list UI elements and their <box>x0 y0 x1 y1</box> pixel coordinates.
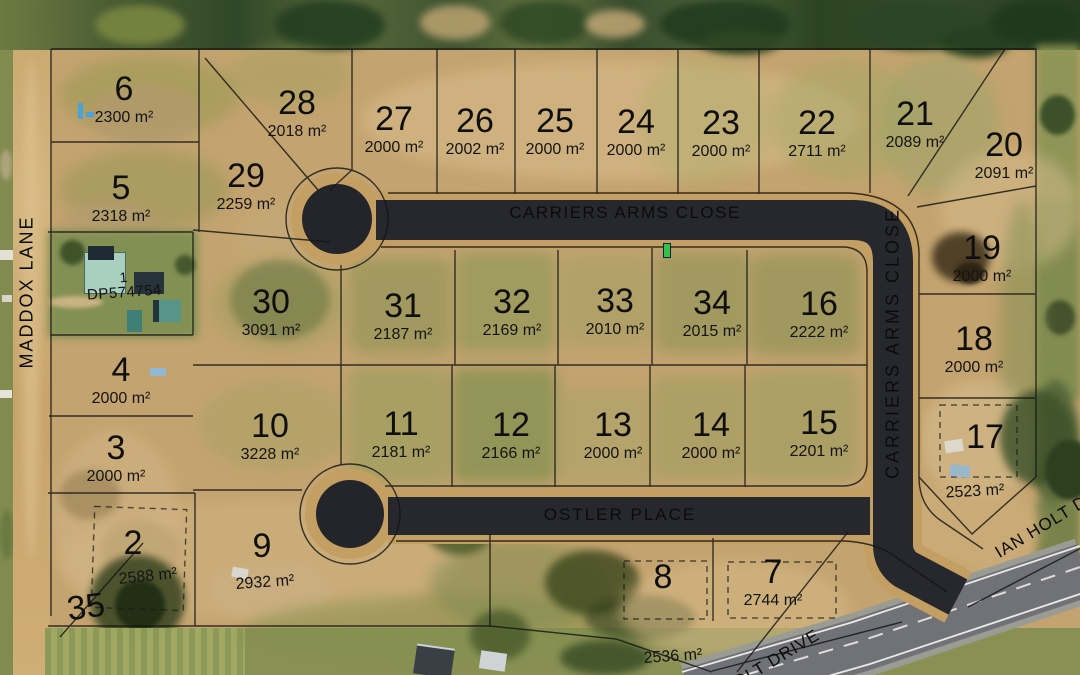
lot-label: 182000 m² <box>945 322 1004 376</box>
lot-number: 31 <box>384 289 422 323</box>
street-label-carriers-arms-close-vertical: CARRIERS ARMS CLOSE <box>883 207 904 479</box>
lot-number: 7 <box>764 555 783 589</box>
lot-area: 2089 m² <box>886 135 945 151</box>
lot-number: 26 <box>456 104 494 138</box>
lot-area: 3091 m² <box>242 323 301 339</box>
lot-area: 2000 m² <box>945 360 1004 376</box>
lot-label: 322169 m² <box>483 285 542 339</box>
lot-area: 2000 m² <box>92 391 151 407</box>
lot-area: 2711 m² <box>788 144 846 160</box>
neighbour-roof <box>0 390 12 398</box>
lot-label: 282018 m² <box>268 86 327 140</box>
lot-number: 11 <box>383 407 418 441</box>
lot-label: 9 <box>253 529 272 563</box>
lot-area: 2002 m² <box>446 142 505 158</box>
lot-label: 62300 m² <box>95 72 154 126</box>
machinery <box>949 464 970 478</box>
lot-area: 2187 m² <box>374 327 433 343</box>
street-label-carriers-arms-close: CARRIERS ARMS CLOSE <box>509 203 741 223</box>
lot-number: 25 <box>536 104 574 138</box>
lot-label: 72744 m² <box>744 555 803 609</box>
lot-label: 232000 m² <box>692 106 751 160</box>
lot-area: 2318 m² <box>92 209 151 225</box>
lot-label: 202091 m² <box>975 128 1034 182</box>
lot-area: 2000 m² <box>87 469 146 485</box>
lot-number: 8 <box>654 560 673 594</box>
lot-label: 292259 m² <box>217 159 276 213</box>
lot-area: 2744 m² <box>744 593 803 609</box>
lot-number: 4 <box>112 353 131 387</box>
aerial-subdivision-map: 62300 m²52318 m²282018 m²292259 m²272000… <box>0 0 1080 675</box>
survey-marker <box>663 243 671 258</box>
ostler-bulb <box>316 480 384 548</box>
lot-label: 222711 m² <box>788 106 846 160</box>
lot-number: 23 <box>702 106 740 140</box>
lot-number: 19 <box>963 231 1001 265</box>
lot-label: 132000 m² <box>584 408 643 462</box>
lot-label: 262002 m² <box>446 104 505 158</box>
lot-area: 2091 m² <box>975 166 1034 182</box>
lot-label: 312187 m² <box>374 289 433 343</box>
lot-number: 33 <box>596 284 634 318</box>
lot-number: 32 <box>493 285 531 319</box>
lot-label: 17 <box>966 420 1004 454</box>
lot-label: 303091 m² <box>242 285 301 339</box>
lot-label: 2 <box>124 526 143 560</box>
lot-area: 2300 m² <box>95 110 154 126</box>
neighbour-roof <box>0 250 13 260</box>
neighbour-roof <box>2 295 12 302</box>
lot-number: 29 <box>227 159 265 193</box>
lot-label: 242000 m² <box>607 105 666 159</box>
lot-area: 2000 m² <box>953 269 1012 285</box>
lot-label: 103228 m² <box>241 409 300 463</box>
lot-area: 2000 m² <box>607 143 666 159</box>
lot-label: 8 <box>654 560 673 594</box>
shed-light-roof <box>479 650 507 671</box>
lot-area: 2523 m² <box>945 481 1005 502</box>
lot-number: 13 <box>594 408 632 442</box>
lot-number: 9 <box>253 529 272 563</box>
lot-area: 2166 m² <box>482 446 541 462</box>
shed-roof <box>153 300 181 322</box>
carriers-bulb <box>302 184 372 254</box>
lot-number: 27 <box>375 102 413 136</box>
portaloo <box>86 112 94 117</box>
lot-area: 2000 m² <box>365 140 424 156</box>
lot-label: 212089 m² <box>886 97 945 151</box>
lot-number: 35 <box>65 588 107 627</box>
lot-area: 2000 m² <box>692 144 751 160</box>
lot-area: 2201 m² <box>790 444 849 460</box>
lot-label: 52318 m² <box>92 171 151 225</box>
lot-number: 24 <box>617 105 655 139</box>
lot-number: 2 <box>124 526 143 560</box>
lot-label: 152201 m² <box>790 406 849 460</box>
lot-number: 10 <box>251 409 289 443</box>
lot-number: 21 <box>896 97 934 131</box>
lot-number: 16 <box>800 287 838 321</box>
shed-dark-roof <box>413 644 455 675</box>
trailer <box>150 368 166 376</box>
lot-label: 122166 m² <box>482 408 541 462</box>
lot-area: 3228 m² <box>241 447 300 463</box>
lot-label: 162222 m² <box>790 287 849 341</box>
lot-label: 35 <box>65 588 107 627</box>
portaloo <box>78 103 83 119</box>
lot-number: 12 <box>492 408 530 442</box>
street-label-maddox-lane: MADDOX LANE <box>17 215 38 368</box>
lot-number: 6 <box>115 72 134 106</box>
lot-number: 22 <box>798 106 836 140</box>
lot-label: 272000 m² <box>365 102 424 156</box>
lot-label: 332010 m² <box>586 284 645 338</box>
lot-number: 28 <box>278 86 316 120</box>
lot-number: 18 <box>955 322 993 356</box>
lot-area: 2181 m² <box>372 445 431 461</box>
lot-area: 2000 m² <box>584 446 643 462</box>
lot-number: 3 <box>107 431 126 465</box>
lot-label: 142000 m² <box>682 408 741 462</box>
lot-number: 14 <box>692 408 730 442</box>
lot-number: 15 <box>800 406 838 440</box>
street-label-ostler-place: OSTLER PLACE <box>544 505 697 525</box>
lot-number: 20 <box>985 128 1023 162</box>
deposited-plan-label: 1 DP574754 <box>86 267 163 304</box>
lot-area: 2018 m² <box>268 124 327 140</box>
machinery <box>944 439 963 453</box>
lot-area: 2169 m² <box>483 323 542 339</box>
lot-area: 2015 m² <box>683 324 742 340</box>
house-roof-dark <box>88 246 114 260</box>
lot-label: 32000 m² <box>87 431 146 485</box>
lot-label: 42000 m² <box>92 353 151 407</box>
lot-number: 34 <box>693 286 731 320</box>
lot-number: 30 <box>252 285 290 319</box>
lot-label: 342015 m² <box>683 286 742 340</box>
lot-label: 192000 m² <box>953 231 1012 285</box>
lot-area: 2000 m² <box>526 142 585 158</box>
lot-number: 5 <box>112 171 131 205</box>
lot-label: 252000 m² <box>526 104 585 158</box>
shed-roof <box>127 310 142 332</box>
lot-label: 112181 m² <box>372 407 431 461</box>
lot-number: 17 <box>966 420 1004 454</box>
lot-area: 2259 m² <box>217 197 276 213</box>
lot-area: 2010 m² <box>586 322 645 338</box>
lot-area: 2000 m² <box>682 446 741 462</box>
lot-area: 2222 m² <box>790 325 849 341</box>
